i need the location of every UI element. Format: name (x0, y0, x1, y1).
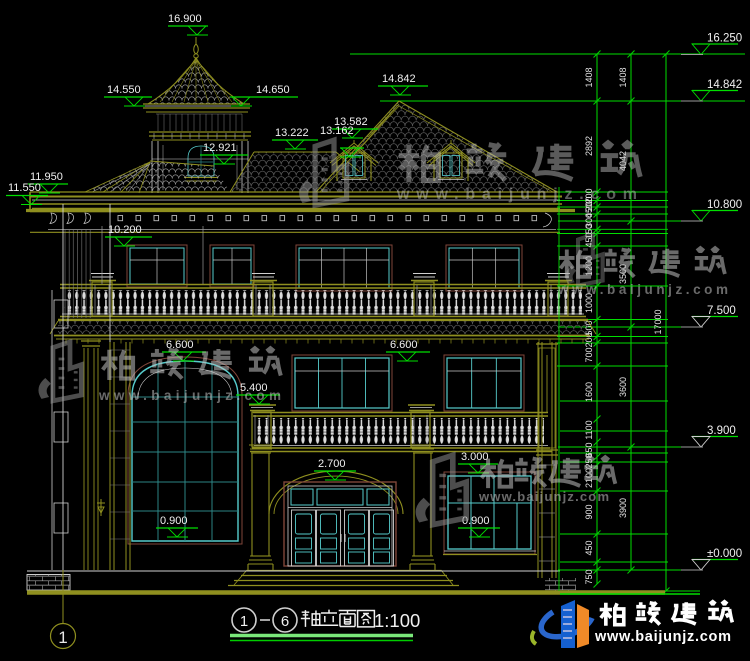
svg-text:10.200: 10.200 (108, 224, 142, 236)
svg-text:900: 900 (584, 504, 594, 519)
svg-text:1100: 1100 (584, 420, 594, 439)
svg-text:14.650: 14.650 (256, 84, 290, 96)
svg-text:17000: 17000 (653, 309, 663, 334)
svg-text:1:100: 1:100 (374, 610, 420, 631)
svg-text:6: 6 (281, 613, 289, 630)
svg-text:2.700: 2.700 (318, 458, 346, 470)
svg-text:3900: 3900 (618, 498, 628, 518)
svg-text:1: 1 (240, 613, 248, 630)
svg-text:3600: 3600 (618, 377, 628, 397)
svg-text:10.800: 10.800 (707, 199, 742, 211)
svg-text:3.900: 3.900 (707, 425, 736, 437)
svg-text:14.842: 14.842 (707, 79, 742, 91)
svg-text:14.842: 14.842 (382, 73, 416, 85)
svg-text:450: 450 (584, 540, 594, 555)
svg-text:1408: 1408 (584, 67, 594, 87)
svg-text:6.600: 6.600 (390, 339, 418, 351)
svg-text:13.222: 13.222 (275, 127, 309, 139)
svg-text:1600: 1600 (584, 382, 594, 402)
svg-text:16.250: 16.250 (707, 33, 742, 45)
svg-text:14.550: 14.550 (107, 84, 141, 96)
svg-text:1: 1 (58, 628, 67, 647)
svg-text:0.900: 0.900 (160, 515, 188, 527)
svg-text:2892: 2892 (584, 136, 594, 156)
svg-text:11.550: 11.550 (8, 182, 41, 194)
svg-text:7.500: 7.500 (707, 305, 736, 317)
svg-text:13.162: 13.162 (320, 125, 354, 137)
svg-text:www.baijunjz.com: www.baijunjz.com (478, 489, 609, 504)
svg-text:3.000: 3.000 (461, 451, 489, 463)
svg-text:16.900: 16.900 (168, 13, 202, 25)
svg-text:www.baijunjz.com: www.baijunjz.com (594, 629, 731, 645)
svg-text:12.921: 12.921 (203, 142, 237, 154)
svg-text:750: 750 (584, 569, 594, 584)
svg-text:1408: 1408 (618, 67, 628, 87)
svg-text:700: 700 (584, 347, 594, 362)
svg-text:±0.000: ±0.000 (707, 548, 742, 560)
